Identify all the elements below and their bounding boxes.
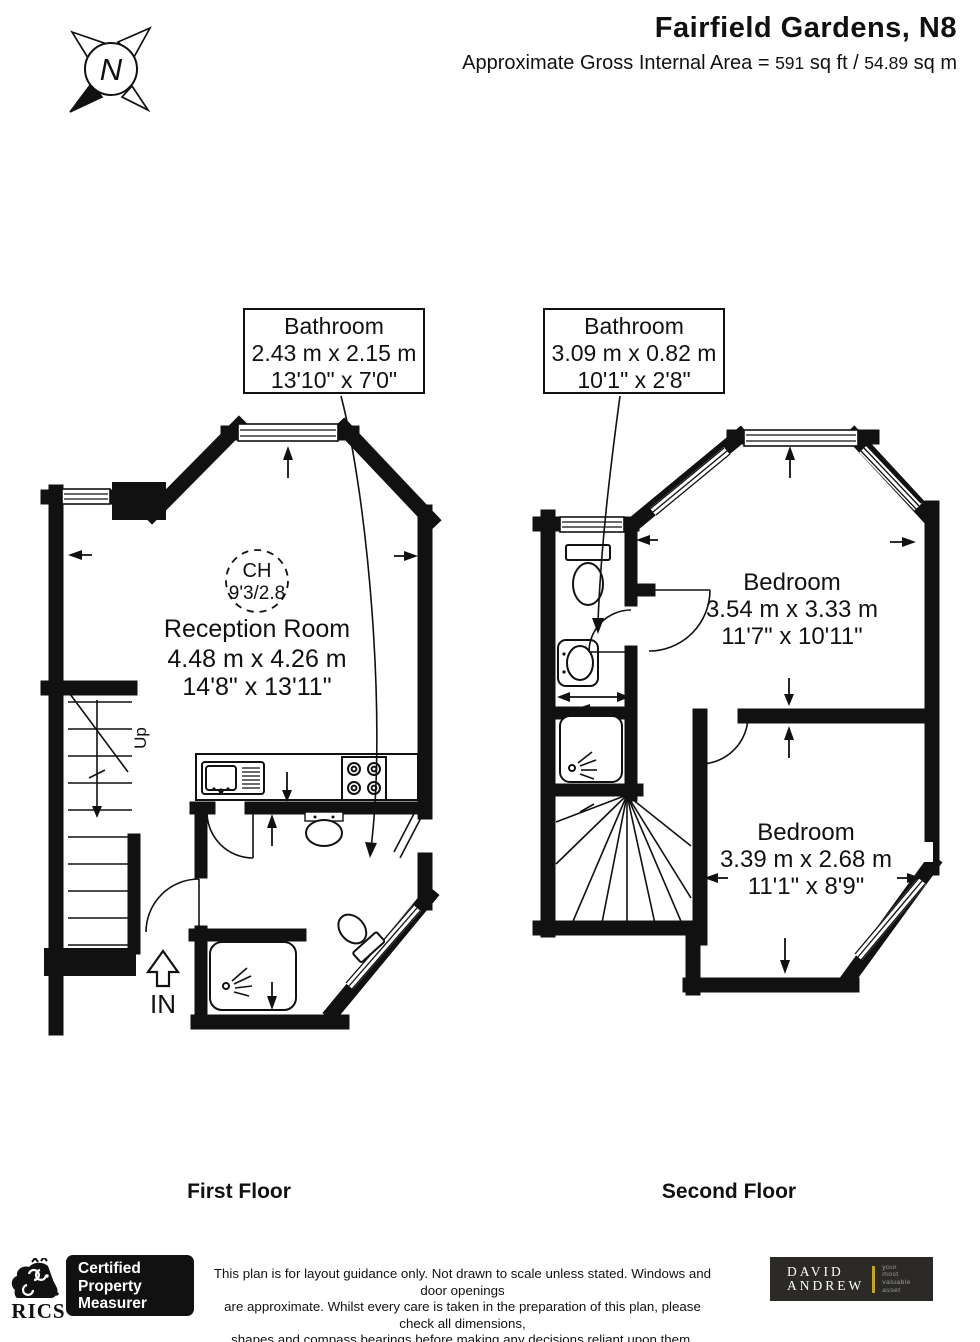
window-bay-left-angled [650, 448, 730, 515]
callout-metric: 2.43 m x 2.15 m [245, 340, 423, 367]
staircase-first-floor [68, 694, 132, 945]
window-bay-bottom-angled [855, 878, 925, 960]
bedroom2-imperial: 11'1" x 8'9" [748, 873, 865, 900]
window-bay-top [744, 430, 858, 446]
bedroom2-name: Bedroom [757, 819, 854, 846]
certified-property-measurer-badge: Certified Property Measurer [66, 1255, 194, 1316]
toilet-icon-second-floor [566, 545, 610, 605]
area-sqm-value: 54.89 [864, 53, 908, 73]
bedroom1-metric: 3.54 m x 3.33 m [706, 596, 878, 623]
area-subtitle: Approximate Gross Internal Area = 591 sq… [462, 52, 957, 75]
second-floor-windows [560, 430, 925, 960]
agency-name-line: ANDREW [787, 1279, 864, 1294]
first-floor-plan [44, 424, 431, 1028]
certified-line: Measurer [78, 1295, 194, 1313]
rics-wordmark: RICS® [10, 1299, 74, 1324]
up-label: Up [131, 727, 150, 749]
floorplan-page: CH 9'3/2.8 Reception Room 4.48 m x 4.26 … [0, 0, 980, 1342]
area-sqft-value: 591 [775, 53, 804, 73]
disclaimer-line: shapes and compass bearings before makin… [205, 1332, 720, 1342]
area-sqm-unit: sq m [914, 52, 957, 74]
agency-tagline: your most valuable asset [882, 1264, 911, 1294]
second-floor-title: Second Floor [629, 1180, 829, 1204]
shower-icon-second-floor [560, 716, 622, 782]
bedroom1-name: Bedroom [743, 569, 840, 596]
reception-name: Reception Room [164, 615, 350, 643]
callout-room-name: Bathroom [245, 313, 423, 340]
rics-lion-icon [10, 1258, 66, 1298]
callout-first-floor-bathroom: Bathroom 2.43 m x 2.15 m 13'10" x 7'0" [243, 308, 425, 394]
agency-name: DAVID ANDREW [787, 1265, 864, 1294]
callout-second-floor-bathroom: Bathroom 3.09 m x 0.82 m 10'1" x 2'8" [543, 308, 725, 394]
basin-icon-first-floor [305, 812, 343, 846]
callout-room-name: Bathroom [545, 313, 723, 340]
certified-line: Property [78, 1278, 194, 1296]
disclaimer-text: This plan is for layout guidance only. N… [205, 1266, 720, 1342]
compass-north-letter: N [100, 52, 123, 87]
disclaimer-line: This plan is for layout guidance only. N… [205, 1266, 720, 1299]
shower-icon-first-floor [210, 942, 296, 1010]
kitchen-counter [196, 754, 418, 800]
ch-line2: 9'3/2.8 [229, 583, 285, 604]
reception-imperial: 14'8" x 13'11" [182, 673, 331, 701]
window-top-left [62, 489, 110, 504]
rics-logo: RICS® [10, 1258, 74, 1324]
first-floor-dimension-arrows [68, 446, 418, 1010]
bedroom1-imperial: 11'7" x 10'11" [721, 623, 862, 650]
floor-plans-svg: CH 9'3/2.8 Reception Room 4.48 m x 4.26 … [0, 0, 980, 1342]
agency-gold-bar [872, 1266, 875, 1293]
header: Fairfield Gardens, N8 Approximate Gross … [462, 12, 957, 75]
compass-icon: N [58, 12, 168, 130]
area-sqft-unit: sq ft / [810, 52, 859, 74]
entrance-in-arrow-icon [148, 951, 178, 986]
agency-logo: DAVID ANDREW your most valuable asset [770, 1257, 933, 1301]
staircase-second-floor [556, 795, 691, 933]
callout-metric: 3.09 m x 0.82 m [545, 340, 723, 367]
area-label: Approximate Gross Internal Area = [462, 52, 769, 74]
certified-line: Certified [78, 1260, 194, 1278]
basin-icon-second-floor [558, 640, 598, 686]
bedroom2-metric: 3.39 m x 2.68 m [720, 846, 892, 873]
first-floor-doors [146, 806, 424, 932]
first-floor-title: First Floor [139, 1180, 339, 1204]
callout-imperial: 10'1" x 2'8" [545, 367, 723, 394]
window-top-bay [238, 424, 338, 441]
window-bay-right-angled [861, 445, 921, 509]
page-title: Fairfield Gardens, N8 [462, 12, 957, 45]
reception-metric: 4.48 m x 4.26 m [167, 645, 346, 673]
second-floor-plan [540, 430, 933, 988]
in-label: IN [150, 989, 176, 1019]
ch-line1: CH [243, 560, 272, 582]
disclaimer-line: are approximate. Whilst every care is ta… [205, 1299, 720, 1332]
callout-imperial: 13'10" x 7'0" [245, 367, 423, 394]
agency-name-line: DAVID [787, 1265, 864, 1280]
window-top-left-sf [560, 517, 624, 532]
